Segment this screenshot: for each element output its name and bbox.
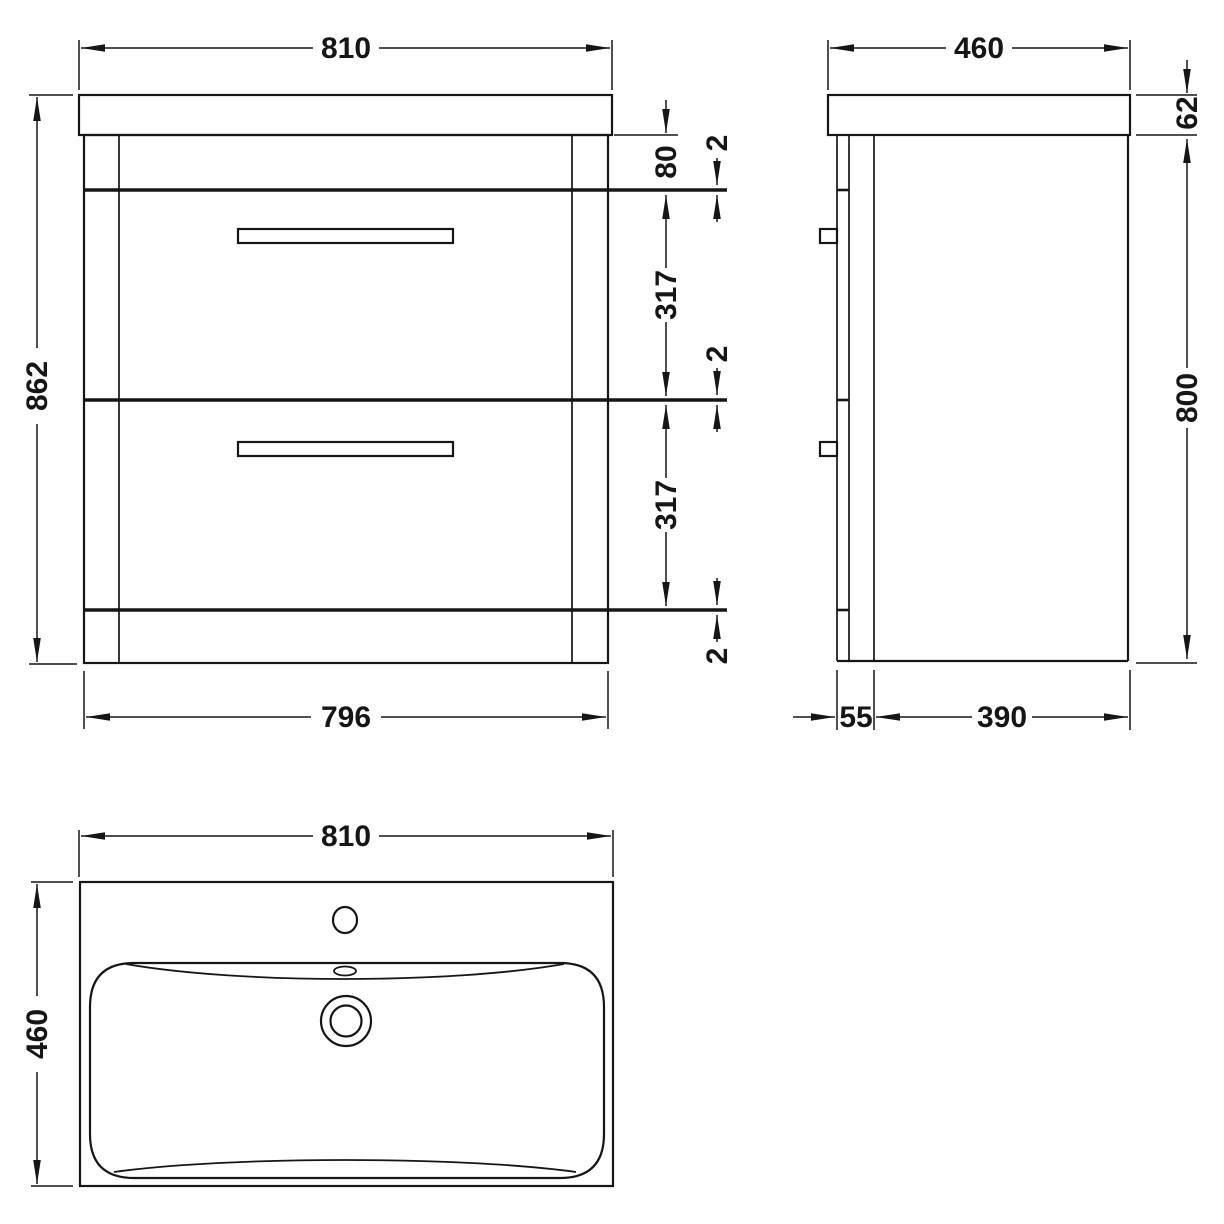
waste-outlet-inner bbox=[331, 1006, 362, 1037]
dim-label-810-front: 810 bbox=[321, 32, 371, 65]
front-dimensions: 810 862 796 80 bbox=[21, 32, 734, 734]
dim-plan-depth: 460 bbox=[21, 882, 73, 1186]
tap-hole bbox=[333, 907, 357, 933]
dim-label-317-lower: 317 bbox=[650, 480, 683, 530]
handle-tab-bottom bbox=[820, 442, 837, 456]
dim-label-460-plan: 460 bbox=[21, 1009, 54, 1059]
waste-outlet-outer bbox=[321, 996, 371, 1046]
dim-front-width-bottom: 796 bbox=[84, 671, 608, 734]
dim-front-height-overall: 862 bbox=[21, 95, 77, 664]
dim-front-rail-height: 80 bbox=[614, 100, 683, 179]
drawer-handle-bottom bbox=[238, 442, 453, 456]
dim-front-gap-middle: 2 bbox=[701, 346, 734, 432]
plan-dimensions: 810 460 bbox=[21, 820, 613, 1186]
dim-label-2-top: 2 bbox=[701, 135, 734, 152]
dim-front-gap-bottom: 2 bbox=[701, 578, 734, 664]
worktop-side bbox=[828, 95, 1130, 135]
handle-tab-top bbox=[820, 229, 837, 243]
dim-label-800: 800 bbox=[1171, 373, 1204, 423]
dim-label-460-side: 460 bbox=[954, 32, 1004, 65]
dim-front-gap-top: 2 bbox=[701, 135, 734, 222]
drawer-handle-top bbox=[238, 229, 453, 243]
overflow-slot bbox=[334, 967, 356, 976]
dim-label-796: 796 bbox=[321, 701, 371, 734]
dim-label-317-upper: 317 bbox=[650, 270, 683, 320]
front-view: 810 862 796 80 bbox=[21, 32, 734, 734]
dim-label-80: 80 bbox=[650, 145, 683, 178]
dim-plan-width: 810 bbox=[79, 820, 613, 877]
plan-structure bbox=[80, 882, 613, 1186]
dim-front-drawer1-height: 317 bbox=[650, 195, 683, 396]
basin-outer-rim bbox=[80, 882, 613, 1186]
front-structure bbox=[79, 95, 727, 663]
side-structure bbox=[820, 95, 1130, 661]
dim-label-62: 62 bbox=[1171, 96, 1204, 129]
technical-drawing-page: 810 862 796 80 bbox=[0, 0, 1224, 1224]
dim-side-depth-top: 460 bbox=[828, 32, 1130, 90]
dim-label-810-plan: 810 bbox=[321, 820, 371, 853]
plan-view: 810 460 bbox=[21, 820, 613, 1186]
dim-front-drawer2-height: 317 bbox=[650, 405, 683, 606]
dim-front-width-top: 810 bbox=[79, 32, 612, 90]
vanity-unit-dimension-drawing: 810 862 796 80 bbox=[0, 0, 1224, 1224]
dim-label-390: 390 bbox=[977, 701, 1027, 734]
side-dimensions: 460 62 800 55 bbox=[793, 32, 1204, 734]
side-view: 460 62 800 55 bbox=[793, 32, 1204, 734]
basin-front-lip-curve bbox=[114, 1160, 576, 1172]
dim-side-worktop-thickness: 62 bbox=[1136, 60, 1204, 135]
dim-label-55: 55 bbox=[839, 701, 872, 734]
dim-side-drawer-front-depth: 55 bbox=[793, 670, 874, 734]
dim-side-cabinet-height: 800 bbox=[1136, 139, 1204, 663]
dim-label-2-middle: 2 bbox=[701, 346, 734, 363]
worktop-front bbox=[79, 95, 612, 135]
dim-side-cabinet-depth: 390 bbox=[876, 670, 1130, 734]
dim-label-2-bottom: 2 bbox=[701, 648, 734, 665]
dim-label-862: 862 bbox=[21, 361, 54, 411]
